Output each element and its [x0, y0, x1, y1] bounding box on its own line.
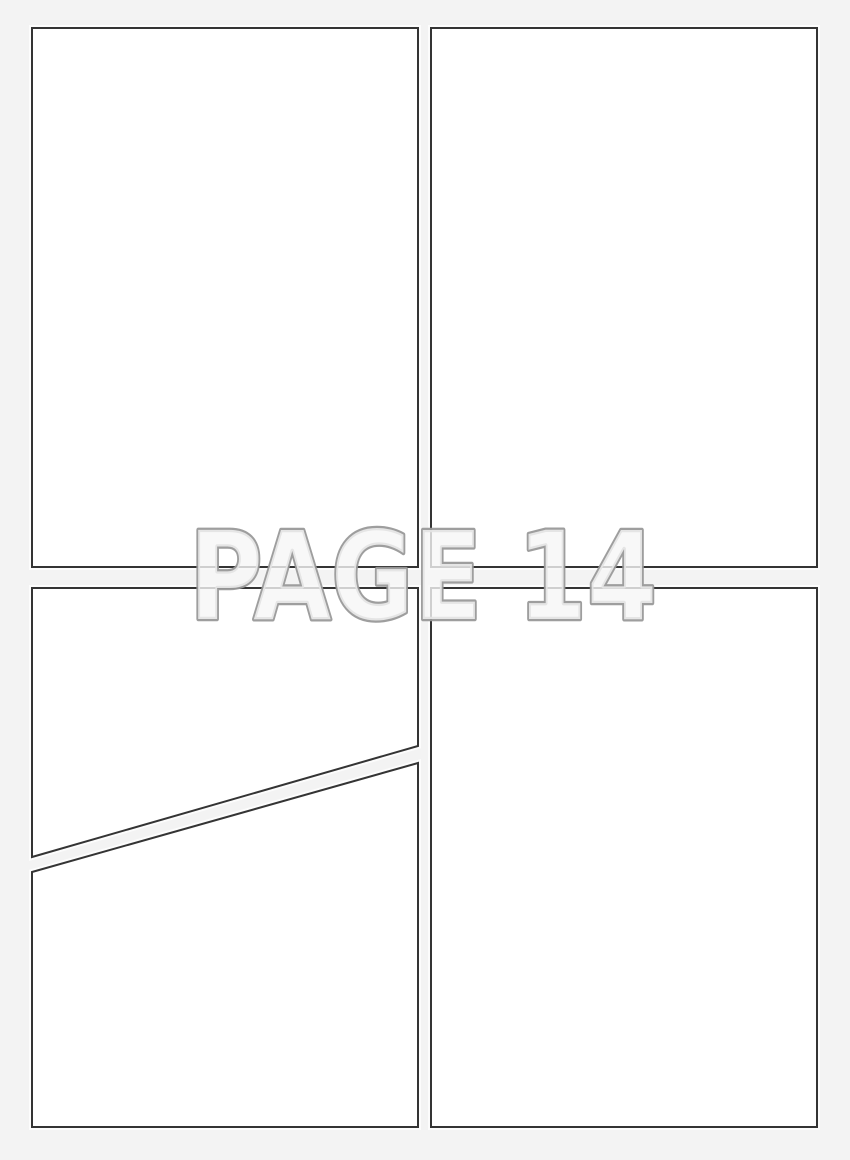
panel-bottom-left-group: [31, 587, 419, 1128]
panel-top-left: [31, 27, 419, 568]
panel-bottom-right: [430, 587, 818, 1128]
comic-template-page: PAGE 14: [0, 0, 850, 1160]
panel-top-right: [430, 27, 818, 568]
